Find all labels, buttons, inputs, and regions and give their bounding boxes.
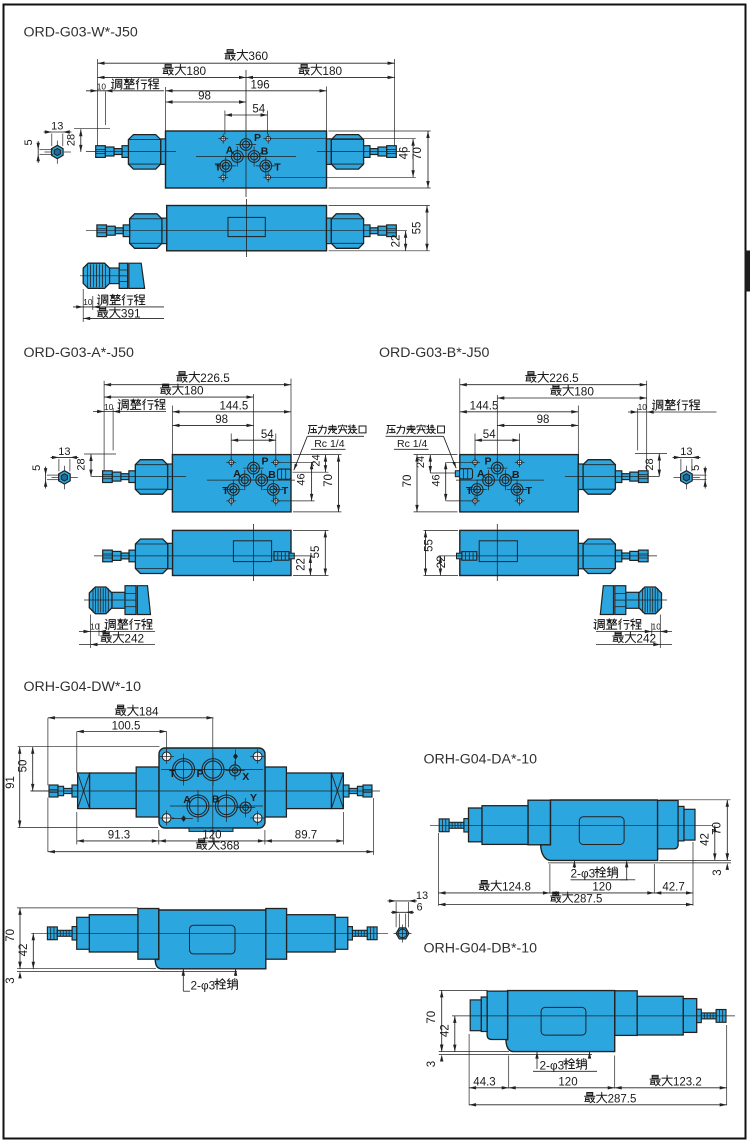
svg-text:144.5: 144.5 bbox=[470, 400, 499, 412]
svg-text:226.5: 226.5 bbox=[549, 371, 579, 385]
svg-text:A: A bbox=[233, 468, 241, 480]
svg-text:10: 10 bbox=[652, 621, 662, 631]
svg-text:180: 180 bbox=[574, 385, 594, 399]
svg-text:391: 391 bbox=[121, 307, 141, 321]
svg-text:2-φ3: 2-φ3 bbox=[571, 867, 596, 881]
svg-text:89.7: 89.7 bbox=[295, 829, 317, 841]
svg-text:Rc 1/4: Rc 1/4 bbox=[397, 438, 428, 450]
svg-text:T: T bbox=[526, 485, 533, 497]
svg-text:10: 10 bbox=[90, 621, 100, 631]
svg-text:226.5: 226.5 bbox=[200, 371, 230, 385]
svg-text:3: 3 bbox=[712, 869, 724, 875]
svg-text:54: 54 bbox=[252, 103, 265, 115]
svg-text:54: 54 bbox=[261, 429, 274, 441]
svg-text:42: 42 bbox=[439, 1024, 451, 1037]
svg-text:13: 13 bbox=[680, 446, 692, 458]
svg-text:P: P bbox=[254, 132, 261, 144]
svg-text:ORD-G03-W*-J50: ORD-G03-W*-J50 bbox=[24, 25, 138, 41]
svg-text:13: 13 bbox=[416, 890, 428, 902]
svg-text:A: A bbox=[183, 794, 191, 806]
svg-text:287.5: 287.5 bbox=[608, 1094, 637, 1106]
svg-text:ORH-G04-DA*-10: ORH-G04-DA*-10 bbox=[424, 752, 538, 768]
svg-text:B: B bbox=[261, 145, 269, 157]
svg-text:70: 70 bbox=[402, 475, 414, 488]
svg-text:144.5: 144.5 bbox=[220, 400, 249, 412]
svg-text:22: 22 bbox=[391, 235, 403, 248]
svg-text:5: 5 bbox=[31, 465, 43, 471]
svg-text:180: 180 bbox=[184, 384, 204, 398]
svg-text:ORH-G04-DW*-10: ORH-G04-DW*-10 bbox=[24, 679, 142, 695]
svg-text:70: 70 bbox=[426, 1011, 438, 1024]
svg-text:360: 360 bbox=[248, 49, 268, 63]
svg-text:120: 120 bbox=[558, 1077, 577, 1089]
svg-text:T: T bbox=[282, 485, 289, 497]
svg-text:13: 13 bbox=[58, 446, 70, 458]
svg-text:B: B bbox=[268, 469, 276, 481]
svg-text:5: 5 bbox=[23, 139, 35, 145]
svg-text:184: 184 bbox=[139, 705, 159, 719]
svg-text:Rc 1/4: Rc 1/4 bbox=[314, 438, 345, 450]
svg-text:B: B bbox=[212, 794, 220, 806]
svg-text:123.2: 123.2 bbox=[673, 1077, 702, 1089]
svg-text:124.8: 124.8 bbox=[502, 882, 531, 894]
svg-text:A: A bbox=[226, 145, 234, 157]
svg-text:T: T bbox=[274, 161, 281, 173]
svg-text:55: 55 bbox=[310, 546, 322, 559]
svg-text:98: 98 bbox=[215, 414, 228, 426]
svg-text:91.3: 91.3 bbox=[108, 829, 130, 841]
svg-text:46: 46 bbox=[431, 474, 443, 486]
svg-text:10: 10 bbox=[638, 402, 648, 412]
svg-text:98: 98 bbox=[537, 414, 550, 426]
svg-text:98: 98 bbox=[198, 91, 211, 103]
svg-text:46: 46 bbox=[398, 147, 410, 160]
svg-text:ORH-G04-DB*-10: ORH-G04-DB*-10 bbox=[424, 941, 538, 957]
svg-text:70: 70 bbox=[323, 474, 335, 487]
svg-text:91: 91 bbox=[5, 776, 17, 789]
svg-text:T: T bbox=[466, 485, 473, 497]
svg-text:42: 42 bbox=[699, 833, 711, 846]
svg-text:P: P bbox=[196, 768, 203, 780]
svg-text:55: 55 bbox=[411, 222, 423, 235]
svg-text:ORD-G03-A*-J50: ORD-G03-A*-J50 bbox=[24, 345, 134, 361]
svg-text:100.5: 100.5 bbox=[112, 720, 141, 732]
svg-text:T: T bbox=[222, 485, 229, 497]
svg-text:24: 24 bbox=[311, 454, 323, 466]
svg-text:28: 28 bbox=[65, 134, 77, 146]
svg-text:368: 368 bbox=[220, 839, 240, 853]
svg-text:120: 120 bbox=[592, 882, 611, 894]
svg-text:46: 46 bbox=[296, 473, 308, 485]
svg-text:50: 50 bbox=[17, 760, 29, 773]
svg-text:B: B bbox=[512, 469, 520, 481]
svg-text:42.7: 42.7 bbox=[662, 882, 684, 894]
svg-text:T: T bbox=[169, 768, 176, 780]
svg-text:3: 3 bbox=[426, 1061, 438, 1067]
svg-text:70: 70 bbox=[412, 147, 424, 160]
svg-text:P: P bbox=[261, 456, 268, 468]
svg-text:10: 10 bbox=[104, 402, 114, 412]
svg-text:70: 70 bbox=[5, 929, 17, 942]
svg-text:196: 196 bbox=[251, 79, 270, 91]
svg-text:242: 242 bbox=[124, 632, 144, 646]
svg-text:6: 6 bbox=[417, 902, 423, 914]
svg-text:287.5: 287.5 bbox=[574, 893, 603, 905]
svg-text:28: 28 bbox=[644, 458, 656, 470]
svg-text:X: X bbox=[242, 771, 249, 783]
svg-text:22: 22 bbox=[436, 556, 448, 569]
svg-text:44.3: 44.3 bbox=[473, 1077, 495, 1089]
svg-text:10: 10 bbox=[83, 297, 93, 307]
svg-text:54: 54 bbox=[483, 429, 496, 441]
svg-text:22: 22 bbox=[295, 558, 307, 571]
svg-text:70: 70 bbox=[712, 822, 724, 835]
svg-text:5: 5 bbox=[690, 465, 702, 471]
svg-text:3: 3 bbox=[5, 977, 17, 983]
svg-text:42: 42 bbox=[18, 944, 30, 957]
svg-text:180: 180 bbox=[322, 64, 342, 78]
svg-text:13: 13 bbox=[51, 121, 63, 133]
svg-text:10: 10 bbox=[97, 81, 107, 91]
svg-text:242: 242 bbox=[636, 632, 656, 646]
svg-text:2-φ3: 2-φ3 bbox=[191, 979, 216, 993]
svg-text:A: A bbox=[477, 468, 485, 480]
svg-text:ORD-G03-B*-J50: ORD-G03-B*-J50 bbox=[379, 345, 489, 361]
svg-text:Y: Y bbox=[250, 792, 257, 804]
svg-text:28: 28 bbox=[76, 458, 88, 470]
svg-text:T: T bbox=[215, 161, 222, 173]
svg-text:55: 55 bbox=[424, 539, 436, 552]
svg-text:180: 180 bbox=[186, 64, 206, 78]
svg-text:P: P bbox=[484, 456, 491, 468]
svg-text:2-φ3: 2-φ3 bbox=[540, 1058, 565, 1072]
